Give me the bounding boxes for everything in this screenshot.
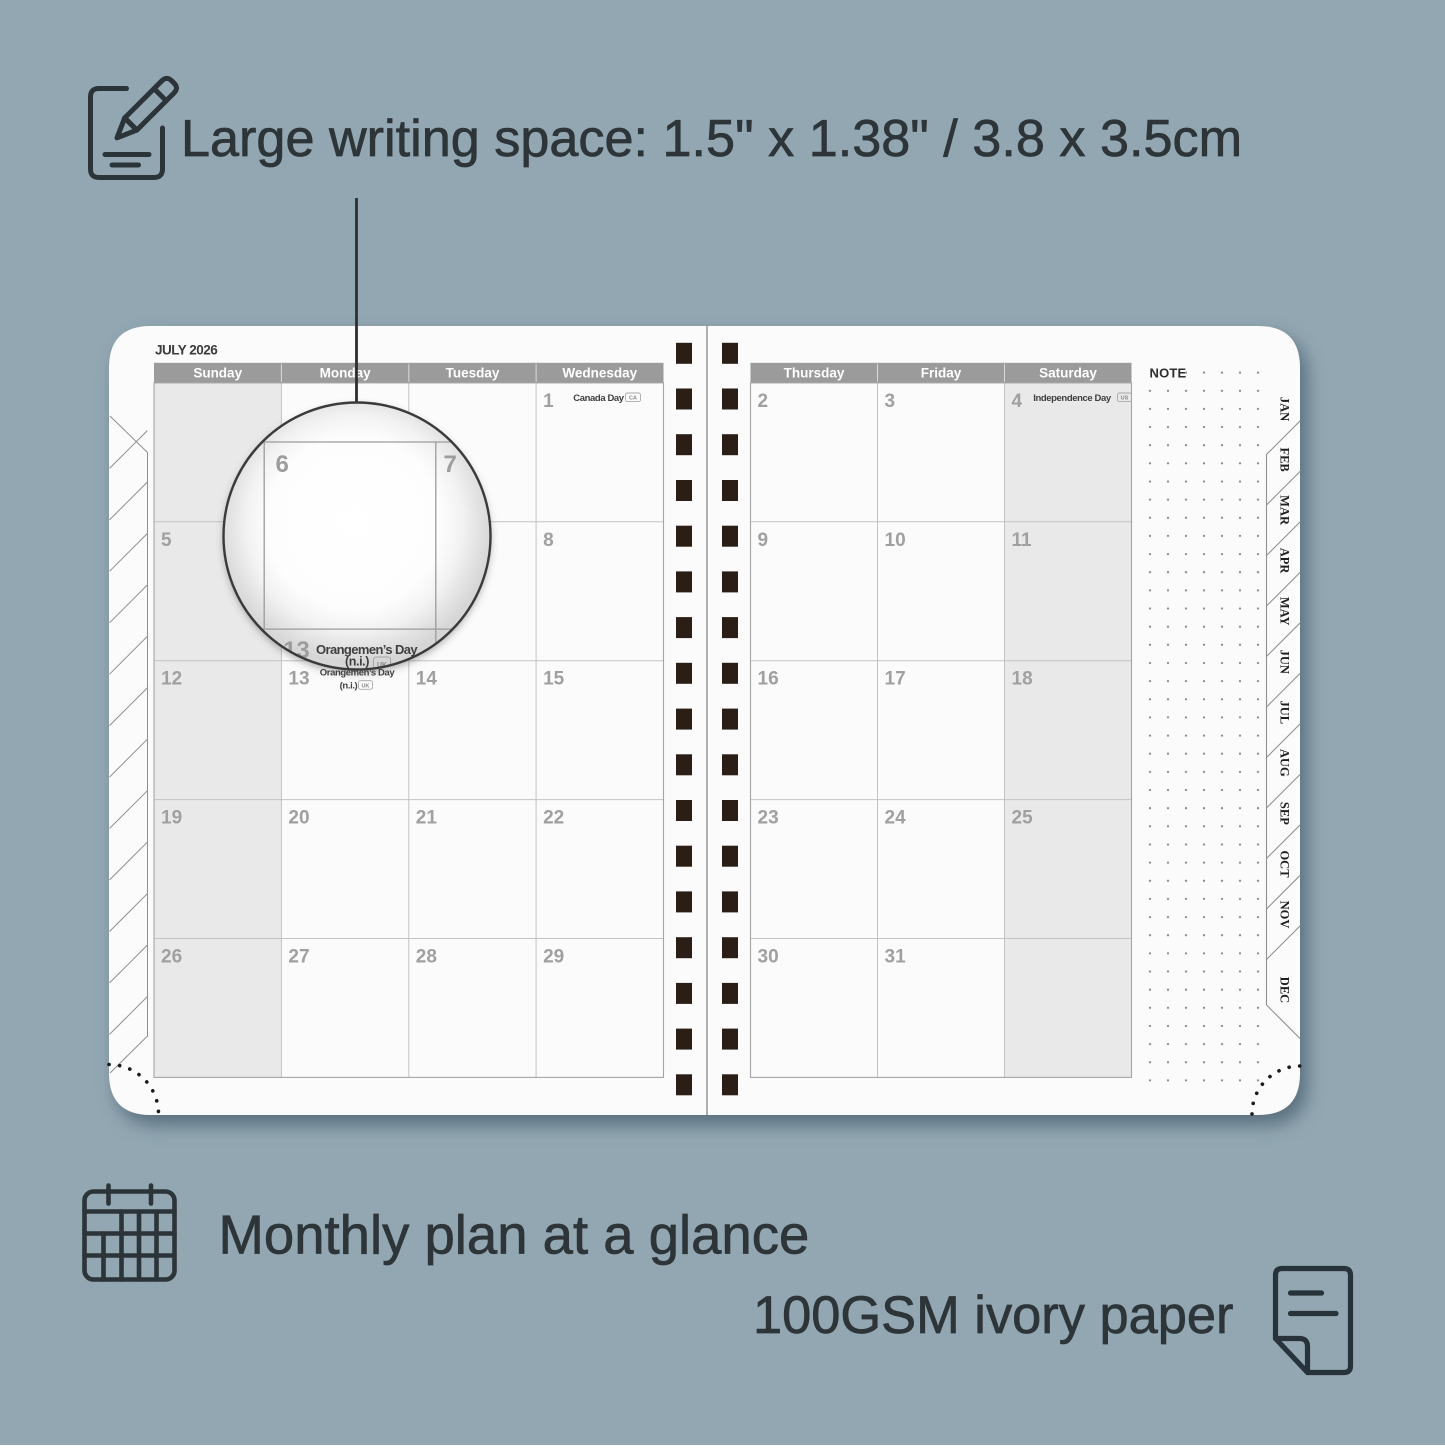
svg-text:1: 1 <box>543 391 554 412</box>
svg-text:(n.i.): (n.i.) <box>340 680 358 691</box>
svg-text:Saturday: Saturday <box>1039 366 1097 381</box>
svg-text:20: 20 <box>288 808 309 829</box>
svg-text:23: 23 <box>758 808 779 829</box>
svg-text:Independence Day: Independence Day <box>1033 393 1112 404</box>
svg-text:SEP: SEP <box>1278 802 1292 825</box>
svg-text:6: 6 <box>276 451 289 478</box>
svg-text:11: 11 <box>1012 530 1033 551</box>
svg-text:28: 28 <box>416 947 437 968</box>
svg-text:10: 10 <box>885 530 906 551</box>
svg-text:CA: CA <box>629 396 637 402</box>
svg-text:100GSM ivory paper: 100GSM ivory paper <box>753 1287 1233 1345</box>
svg-text:(n.i.): (n.i.) <box>345 655 369 669</box>
svg-text:Monthly plan at a glance: Monthly plan at a glance <box>219 1204 810 1265</box>
svg-text:3: 3 <box>885 391 896 412</box>
svg-text:17: 17 <box>885 669 906 690</box>
svg-text:MAY: MAY <box>1278 597 1292 626</box>
svg-text:Wednesday: Wednesday <box>562 366 637 381</box>
svg-text:21: 21 <box>416 808 438 829</box>
svg-text:22: 22 <box>543 808 564 829</box>
svg-text:DEC: DEC <box>1278 977 1292 1003</box>
svg-text:9: 9 <box>758 530 769 551</box>
svg-text:Canada Day: Canada Day <box>573 393 625 404</box>
svg-text:UK: UK <box>362 683 370 689</box>
svg-text:31: 31 <box>885 947 907 968</box>
svg-text:FEB: FEB <box>1278 447 1292 471</box>
svg-text:NOTE: NOTE <box>1150 366 1187 381</box>
svg-text:5: 5 <box>161 530 172 551</box>
svg-text:Sunday: Sunday <box>193 366 242 381</box>
svg-text:2: 2 <box>758 391 769 412</box>
svg-text:24: 24 <box>885 808 907 829</box>
svg-text:AUG: AUG <box>1278 749 1292 777</box>
svg-text:APR: APR <box>1278 548 1292 575</box>
svg-text:JAN: JAN <box>1278 397 1292 421</box>
svg-text:Thursday: Thursday <box>784 366 845 381</box>
svg-text:27: 27 <box>288 947 309 968</box>
svg-text:12: 12 <box>161 669 182 690</box>
svg-text:Monday: Monday <box>320 366 371 381</box>
svg-text:8: 8 <box>543 530 554 551</box>
svg-text:US: US <box>1121 396 1129 402</box>
svg-text:MAR: MAR <box>1278 495 1292 526</box>
svg-text:NOV: NOV <box>1278 901 1292 929</box>
svg-text:JUN: JUN <box>1278 650 1292 674</box>
svg-text:26: 26 <box>161 947 182 968</box>
svg-text:Large writing space: 1.5" x 1.: Large writing space: 1.5" x 1.38" / 3.8 … <box>181 110 1242 168</box>
svg-text:JUL: JUL <box>1278 700 1292 724</box>
svg-text:4: 4 <box>1012 391 1023 412</box>
svg-text:OCT: OCT <box>1278 850 1292 878</box>
svg-text:29: 29 <box>543 947 564 968</box>
svg-text:19: 19 <box>161 808 182 829</box>
svg-text:30: 30 <box>758 947 779 968</box>
svg-text:18: 18 <box>1012 669 1033 690</box>
svg-text:15: 15 <box>543 669 565 690</box>
svg-text:7: 7 <box>444 451 457 478</box>
svg-text:Friday: Friday <box>921 366 962 381</box>
svg-text:16: 16 <box>758 669 779 690</box>
svg-text:JULY 2026: JULY 2026 <box>155 343 218 358</box>
svg-text:14: 14 <box>416 669 438 690</box>
svg-text:Tuesday: Tuesday <box>446 366 500 381</box>
svg-text:25: 25 <box>1012 808 1034 829</box>
svg-text:13: 13 <box>288 669 309 690</box>
